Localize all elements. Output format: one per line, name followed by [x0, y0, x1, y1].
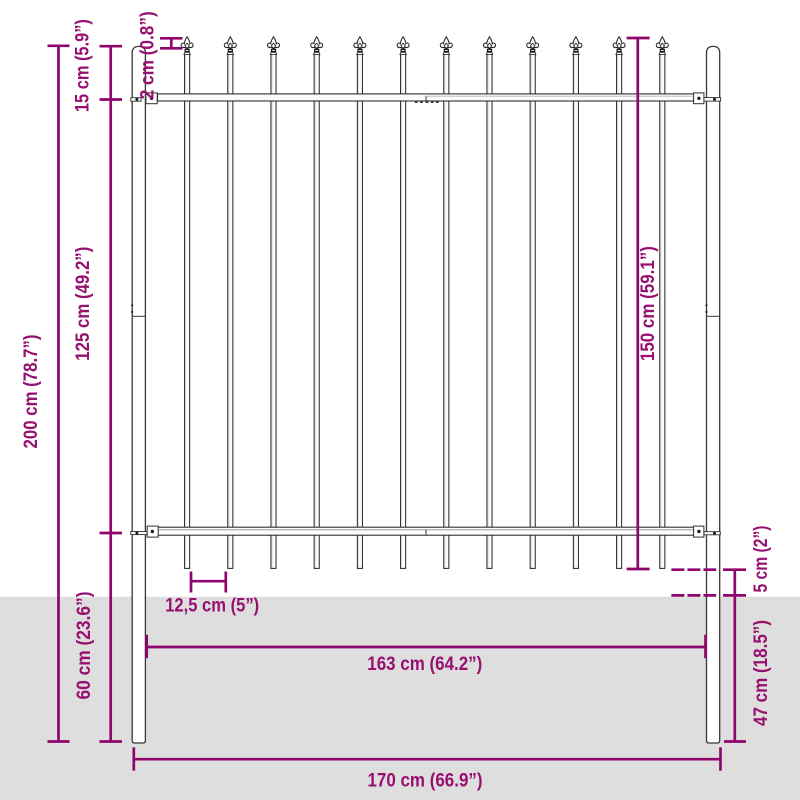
svg-text:47 cm (18.5”): 47 cm (18.5”)	[751, 620, 772, 726]
svg-text:163 cm (64.2”): 163 cm (64.2”)	[367, 654, 482, 675]
svg-text:125 cm (49.2”): 125 cm (49.2”)	[73, 247, 94, 361]
svg-text:60 cm (23.6”): 60 cm (23.6”)	[74, 592, 95, 700]
svg-text:5 cm (2”): 5 cm (2”)	[751, 526, 772, 593]
svg-text:2 cm (0.8”): 2 cm (0.8”)	[137, 11, 158, 99]
svg-text:15 cm (5.9”): 15 cm (5.9”)	[73, 19, 94, 112]
svg-text:12,5 cm (5”): 12,5 cm (5”)	[165, 596, 259, 617]
svg-text:200 cm (78.7”): 200 cm (78.7”)	[21, 335, 42, 449]
svg-text:150 cm (59.1”): 150 cm (59.1”)	[638, 246, 659, 361]
svg-text:170 cm (66.9”): 170 cm (66.9”)	[368, 770, 483, 791]
